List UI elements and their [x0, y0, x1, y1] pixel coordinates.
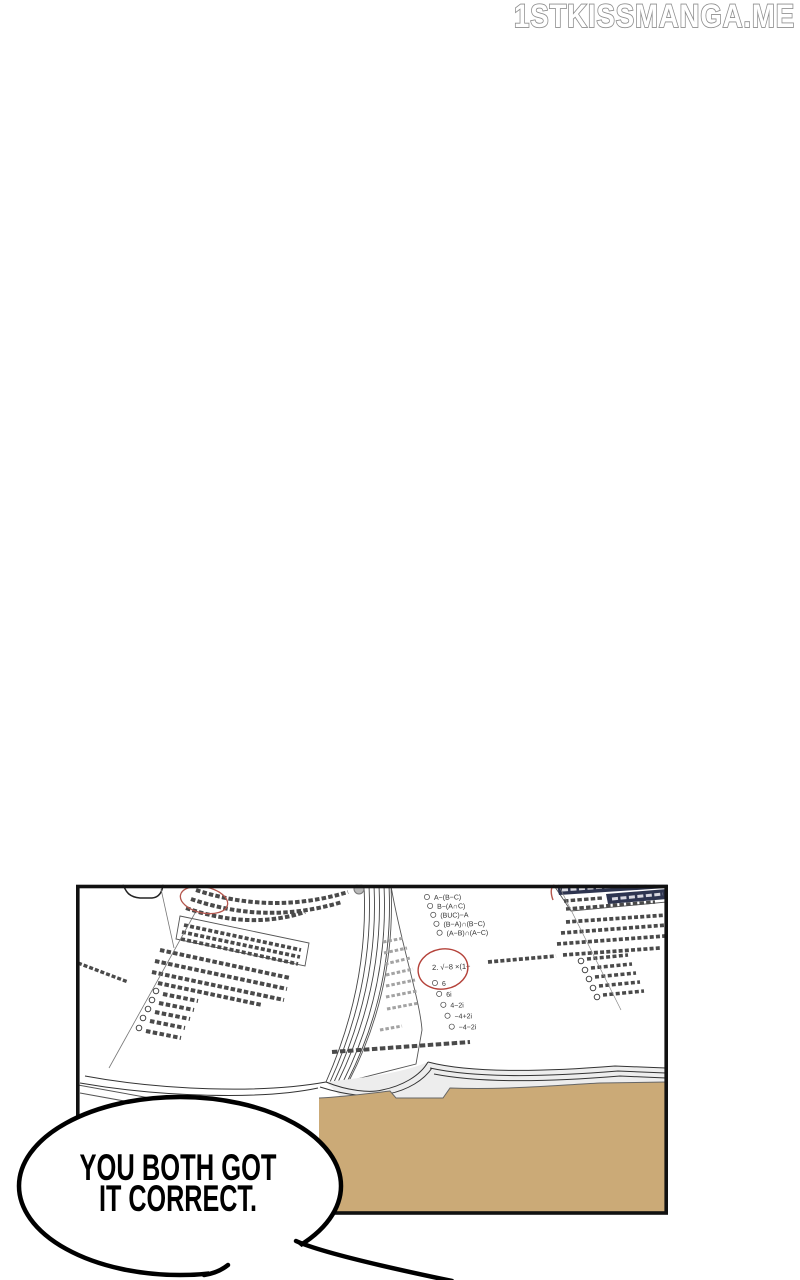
svg-text:(A−B)∩(A−C): (A−B)∩(A−C): [447, 930, 489, 938]
svg-text:4−2i: 4−2i: [450, 1002, 464, 1009]
svg-text:1STKISSMANGA.ME: 1STKISSMANGA.ME: [514, 0, 795, 34]
svg-text:6i: 6i: [446, 992, 452, 999]
svg-text:(BUC)−A: (BUC)−A: [440, 912, 469, 919]
svg-text:(B−A)∩(B−C): (B−A)∩(B−C): [443, 921, 485, 929]
svg-text:A−(B−C): A−(B−C): [434, 894, 461, 901]
svg-text:IT CORRECT.: IT CORRECT.: [99, 1178, 257, 1219]
svg-text:B−(A∩C): B−(A∩C): [437, 903, 465, 910]
svg-text:2. √−8 ×(1−: 2. √−8 ×(1−: [432, 962, 471, 972]
svg-text:−4+2i: −4+2i: [455, 1013, 473, 1020]
svg-text:−4−2i: −4−2i: [459, 1024, 477, 1031]
svg-text:6: 6: [442, 981, 446, 988]
